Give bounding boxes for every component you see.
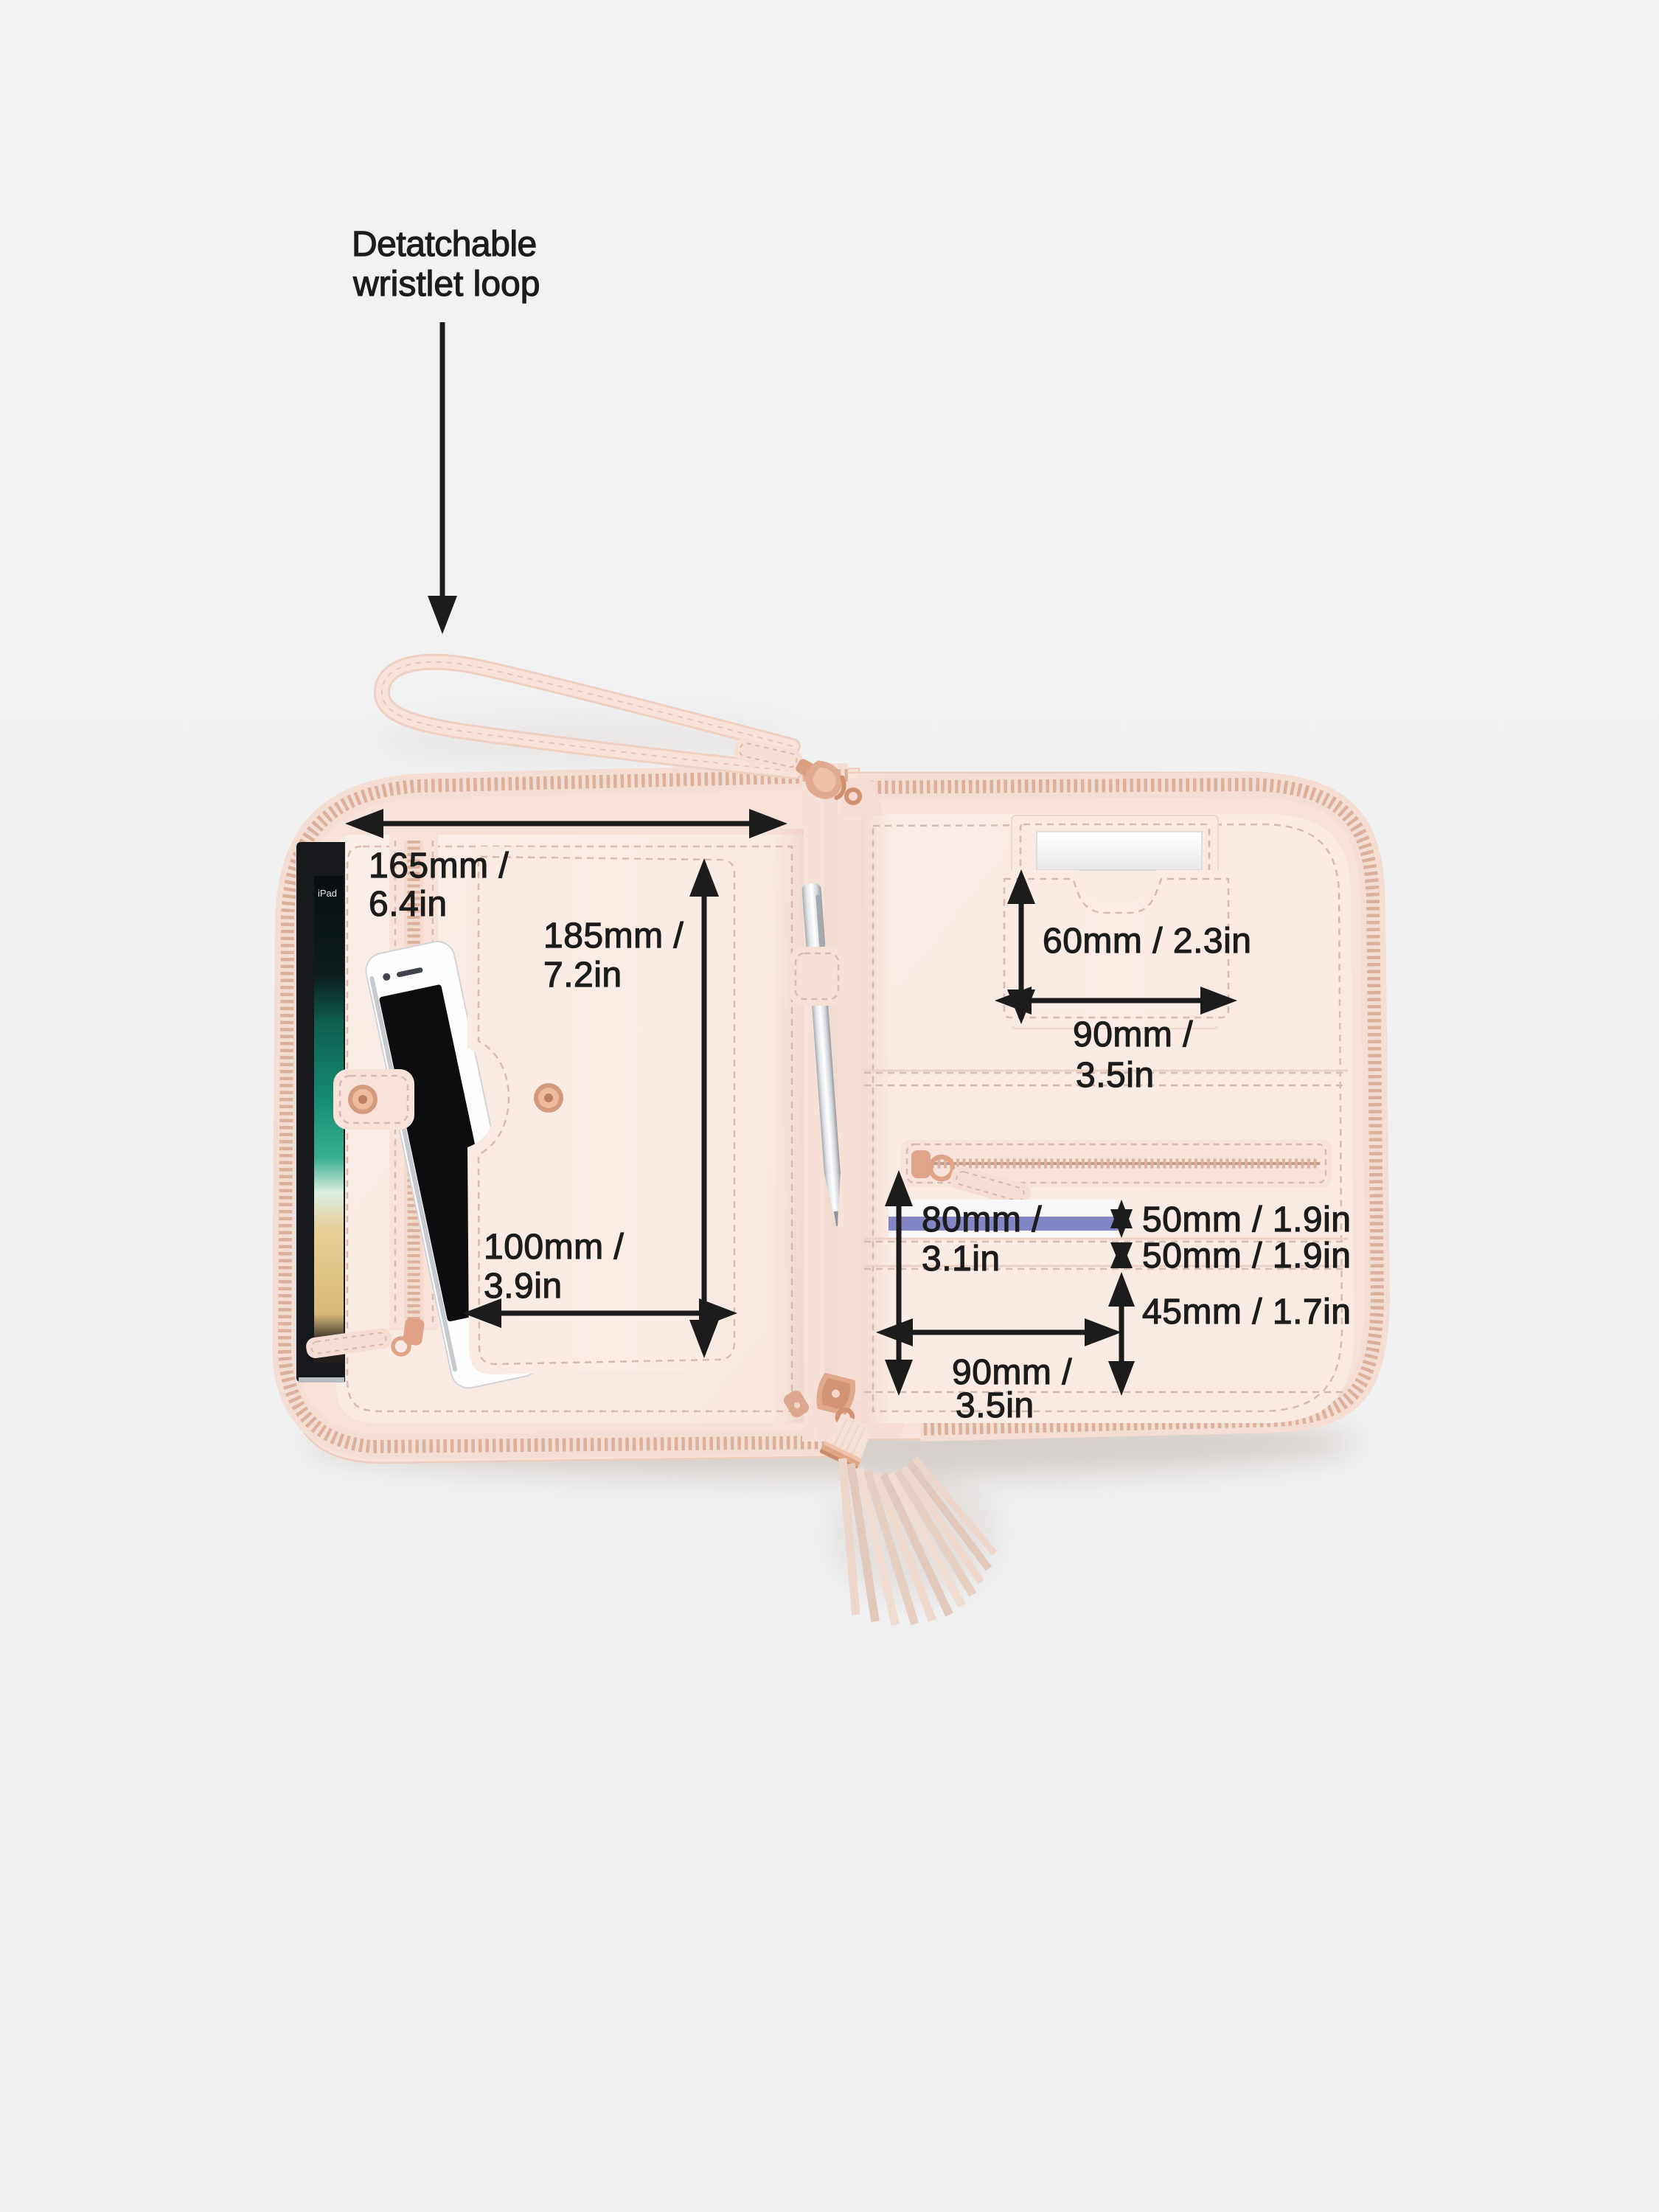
svg-text:iPad: iPad [318,888,337,899]
svg-text:Detatchable: Detatchable [352,225,537,264]
svg-text:50mm / 1.9in: 50mm / 1.9in [1142,1200,1351,1239]
svg-text:7.2in: 7.2in [543,956,622,995]
svg-text:165mm /: 165mm / [369,846,509,886]
svg-text:80mm /: 80mm / [922,1200,1042,1239]
svg-text:90mm /: 90mm / [1073,1015,1193,1054]
svg-text:45mm / 1.7in: 45mm / 1.7in [1142,1293,1351,1332]
svg-text:50mm / 1.9in: 50mm / 1.9in [1142,1237,1351,1276]
svg-text:3.9in: 3.9in [484,1267,563,1306]
svg-text:60mm / 2.3in: 60mm / 2.3in [1043,922,1251,961]
svg-text:100mm /: 100mm / [484,1228,624,1267]
svg-text:wristlet loop: wristlet loop [352,265,540,304]
svg-text:3.5in: 3.5in [956,1386,1034,1425]
svg-text:3.5in: 3.5in [1076,1056,1155,1095]
svg-text:6.4in: 6.4in [369,885,448,924]
svg-text:185mm /: 185mm / [543,917,684,956]
svg-text:3.1in: 3.1in [922,1239,1001,1279]
